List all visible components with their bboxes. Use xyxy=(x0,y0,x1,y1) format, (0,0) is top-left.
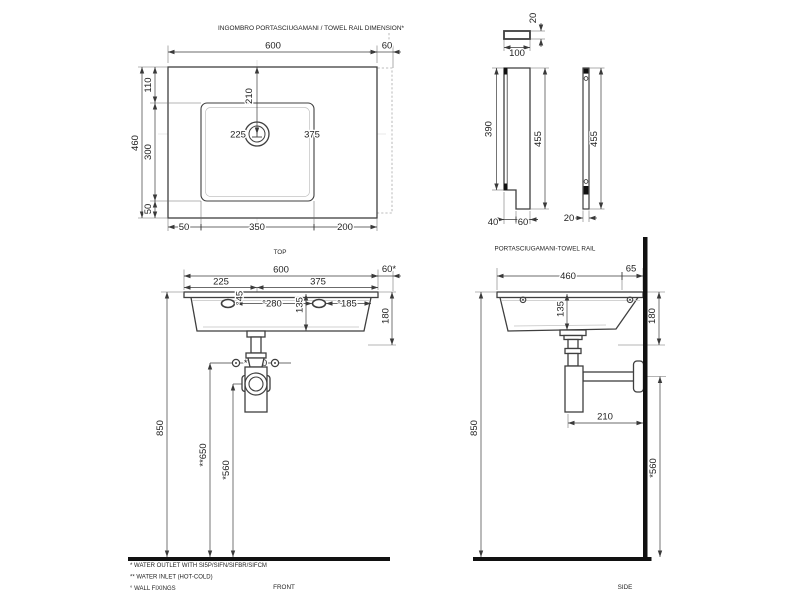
dim-hole-edge: °185 xyxy=(337,299,357,310)
dim-front-rail: 60* xyxy=(382,264,397,275)
dim-front-right: 375 xyxy=(310,277,326,288)
dim-front-floor-height: 850 xyxy=(155,420,166,436)
front-view: 600 60* 225 375 850 **650 *560 °45 °280 … xyxy=(128,264,401,591)
siphon-trap-front xyxy=(242,331,270,412)
basin-slab-side xyxy=(497,292,643,298)
footnote-water-outlet: * WATER OUTLET WITH SI5P/SIFN/SIFBR/SIFC… xyxy=(130,563,267,569)
footnotes: * WATER OUTLET WITH SI5P/SIFN/SIFBR/SIFC… xyxy=(130,563,267,592)
wall-line xyxy=(643,237,648,557)
dim-hole-diameter: °45 xyxy=(235,291,246,305)
floor-line-side xyxy=(473,557,652,561)
footnote-water-inlet: ** WATER INLET (HOT-COLD) xyxy=(130,575,213,581)
outlet-pipe xyxy=(583,372,635,381)
dim-rail-width: 100 xyxy=(509,48,525,59)
dim-rail-bar-height: 455 xyxy=(589,131,600,147)
siphon-trap-side xyxy=(560,330,644,412)
dim-bowl-height: 300 xyxy=(143,144,154,160)
floor-line-front xyxy=(128,557,390,561)
dim-bottom-right: 200 xyxy=(337,222,353,233)
dim-rail-bar-width: 20 xyxy=(564,213,575,224)
dim-side-floor-height: 850 xyxy=(469,420,480,436)
dim-bottom-bowl: 350 xyxy=(249,222,265,233)
towel-rail-views: 20 100 390 455 40 60 xyxy=(484,13,605,253)
dim-front-edge-height: 180 xyxy=(381,308,392,324)
dim-drain-right: 375 xyxy=(304,130,320,141)
wall-rosette xyxy=(634,361,644,392)
dim-front-width: 600 xyxy=(273,265,289,276)
drawing-title: INGOMBRO PORTASCIUGAMANI / TOWEL RAIL DI… xyxy=(218,25,405,32)
dim-front-left: 225 xyxy=(213,277,229,288)
fixing-hole-left xyxy=(222,300,235,308)
rail-plan xyxy=(504,31,530,39)
side-view: 460 65 850 *560 135 180 xyxy=(469,237,666,591)
footnote-wall-fixings: ° WALL FIXINGS xyxy=(130,586,176,592)
dim-side-edge-height: 180 xyxy=(647,308,658,324)
fixing-hole-right xyxy=(313,300,326,308)
dim-drain-left: 225 xyxy=(230,130,246,141)
dim-rail-hook-out: 60 xyxy=(518,217,529,228)
rail-profile xyxy=(504,68,530,209)
dim-holes-cc: °280 xyxy=(262,299,282,310)
dim-rail-thickness: 20 xyxy=(528,13,539,24)
dim-top-edge: 110 xyxy=(143,77,154,92)
dim-front-inner-depth: 135 xyxy=(295,297,306,313)
dim-bottom-left: 50 xyxy=(179,222,190,233)
front-view-label: FRONT xyxy=(273,584,295,591)
dim-side-outlet-height: *560 xyxy=(648,458,659,478)
dim-rail-hook-in: 40 xyxy=(488,217,499,228)
top-view: INGOMBRO PORTASCIUGAMANI / TOWEL RAIL DI… xyxy=(130,25,405,256)
basin-outline-top xyxy=(168,67,377,218)
rail-view-label: PORTASCIUGAMANI-TOWEL RAIL xyxy=(495,246,596,253)
dim-top-rail-overhang: 60 xyxy=(382,41,393,52)
technical-drawing-sheet: INGOMBRO PORTASCIUGAMANI / TOWEL RAIL DI… xyxy=(0,0,800,600)
dim-outlet-height: *560 xyxy=(221,460,232,480)
dim-bottom-edge: 50 xyxy=(143,204,154,215)
dim-side-rail: 65 xyxy=(626,264,637,275)
dim-side-depth: 460 xyxy=(560,271,576,282)
dim-drain-from-top: 210 xyxy=(244,88,255,104)
basin-slab-front xyxy=(184,292,378,298)
top-view-label: TOP xyxy=(274,249,287,256)
dim-top-width: 600 xyxy=(265,41,281,52)
dim-inlet-height: **650 xyxy=(198,443,209,466)
dim-top-depth: 460 xyxy=(130,135,141,151)
dim-outlet-wall: 210 xyxy=(597,412,613,423)
washbasin-dimension-drawing: INGOMBRO PORTASCIUGAMANI / TOWEL RAIL DI… xyxy=(0,0,800,600)
side-view-label: SIDE xyxy=(618,584,633,591)
dim-rail-total-height: 455 xyxy=(533,131,544,147)
dim-rail-plate-height: 390 xyxy=(484,121,495,137)
dim-side-inner-depth: 135 xyxy=(556,301,567,317)
